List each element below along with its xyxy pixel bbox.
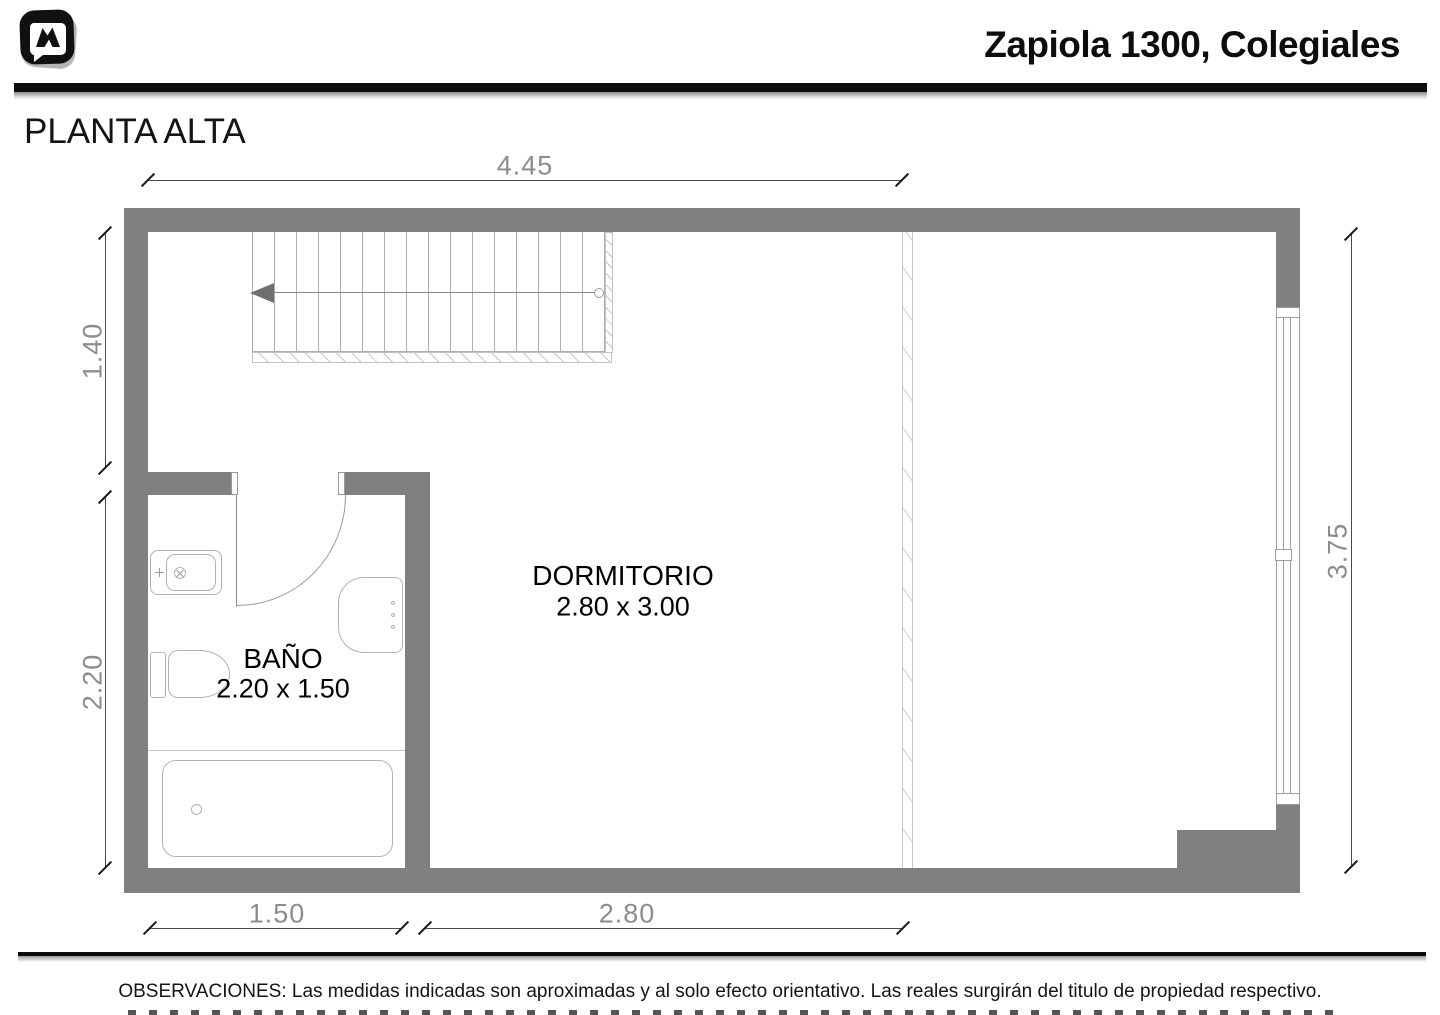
room-label-bano: BAÑO bbox=[243, 643, 322, 675]
dim-label-bath-width: 1.50 bbox=[249, 899, 306, 930]
stair-direction-line bbox=[268, 292, 598, 293]
wall-right-lower bbox=[1276, 805, 1300, 868]
bathtub-drain-icon bbox=[191, 804, 202, 815]
wall-right-upper bbox=[1276, 208, 1300, 307]
bidet-drain-icon bbox=[174, 567, 186, 579]
floor-label: PLANTA ALTA bbox=[24, 112, 246, 152]
observations-text: OBSERVACIONES: Las medidas indicadas son… bbox=[0, 981, 1440, 1003]
footer-divider-shadow bbox=[18, 956, 1426, 962]
wall-bath-top-right bbox=[345, 472, 430, 495]
wall-corner-block bbox=[1177, 830, 1276, 868]
stair-hatch-bottom bbox=[252, 352, 612, 363]
room-size-dormitorio: 2.80 x 3.00 bbox=[556, 592, 690, 623]
room-label-dormitorio: DORMITORIO bbox=[532, 560, 713, 592]
sink-fitting-dot bbox=[391, 601, 395, 605]
page-title: Zapiola 1300, Colegiales bbox=[984, 24, 1400, 66]
stair-hatch-right bbox=[605, 232, 613, 353]
dim-label-interior-depth: 3.75 bbox=[1323, 523, 1354, 580]
stair-direction-arrow-icon bbox=[250, 283, 274, 303]
stair-direction-origin bbox=[594, 288, 604, 298]
wall-left bbox=[124, 208, 148, 893]
wall-bath-right bbox=[405, 495, 430, 868]
sink-fitting-dot bbox=[391, 625, 395, 629]
dim-label-stair-depth: 1.40 bbox=[78, 323, 109, 380]
cutoff-text-fragment bbox=[128, 1010, 1343, 1015]
header-divider-shadow bbox=[14, 92, 1427, 100]
wall-top bbox=[124, 208, 1300, 232]
brand-logo-icon bbox=[16, 6, 80, 72]
header-divider bbox=[14, 83, 1427, 92]
tub-enclosure-line bbox=[148, 750, 405, 751]
partition-wall bbox=[902, 232, 913, 868]
wall-bath-top-left bbox=[148, 472, 232, 495]
sink-fitting-dot bbox=[391, 613, 395, 617]
window-cap-top bbox=[1276, 307, 1300, 318]
window-meeting-stile bbox=[1275, 549, 1292, 561]
toilet-tank bbox=[150, 652, 166, 698]
door-jamb-left bbox=[231, 472, 238, 495]
door-swing-arc bbox=[237, 495, 346, 606]
dim-label-top-width: 4.45 bbox=[497, 151, 554, 182]
bidet-valve-icon-v bbox=[159, 568, 160, 577]
wall-bottom bbox=[124, 868, 1300, 893]
room-size-bano: 2.20 x 1.50 bbox=[216, 674, 350, 705]
door-jamb-right bbox=[338, 472, 345, 495]
dim-line-bottom-right bbox=[425, 928, 903, 929]
window-cap-bottom bbox=[1276, 793, 1300, 805]
dim-label-bath-depth: 2.20 bbox=[78, 654, 109, 711]
dim-label-dorm-width: 2.80 bbox=[599, 899, 656, 930]
